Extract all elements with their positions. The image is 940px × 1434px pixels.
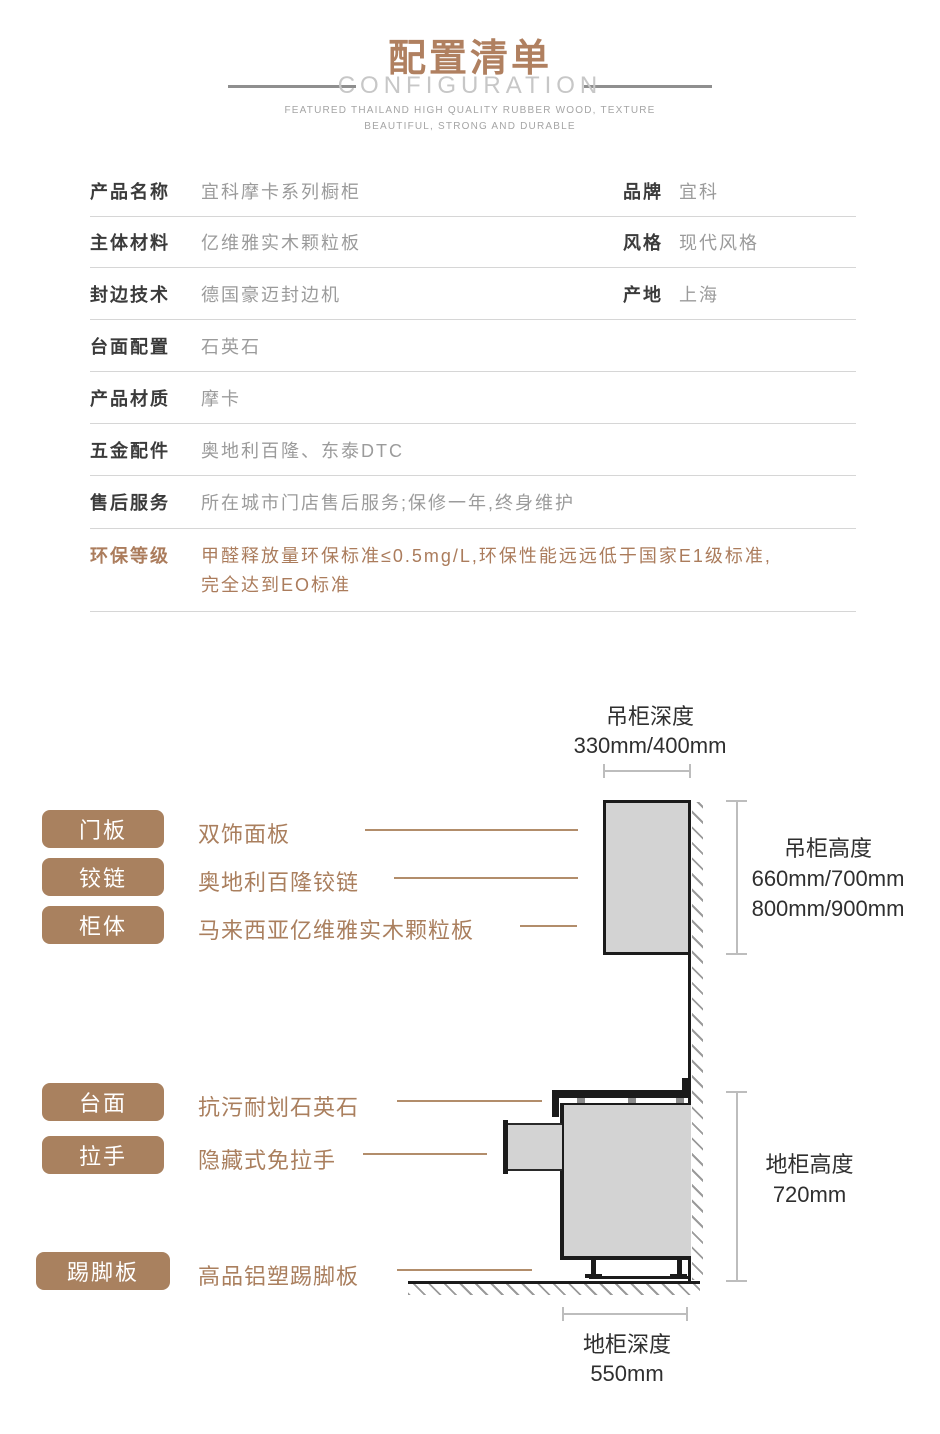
spec-label: 环保等级: [90, 542, 185, 568]
dim-tick: [603, 764, 605, 778]
spec-label: 产地: [623, 281, 663, 307]
tag-door-panel: 门板: [42, 810, 164, 848]
spec-right-pair: 风格 现代风格: [623, 229, 759, 255]
table-row: 产品材质 摩卡: [90, 372, 856, 424]
floor-hatching: [408, 1284, 700, 1295]
leader-line-kickboard: [397, 1269, 532, 1271]
dim-cap: [726, 953, 747, 955]
dim-base-height: 地柜高度 720mm: [722, 1150, 897, 1210]
dim-wall-depth: 吊柜深度 330mm/400mm: [555, 702, 745, 760]
dim-base-height-label: 地柜高度: [722, 1150, 897, 1180]
leader-line-hinge: [394, 877, 578, 879]
dim-wall-height-value1: 660mm/700mm: [733, 864, 923, 894]
spec-value: 奥地利百隆、东泰DTC: [201, 437, 404, 463]
leader-line-handle: [363, 1153, 487, 1155]
spec-label: 封边技术: [90, 281, 185, 307]
tag-hinge: 铰链: [42, 858, 164, 896]
dim-base-depth: 地柜深度 550mm: [543, 1330, 711, 1388]
spec-value: 所在城市门店售后服务;保修一年,终身维护: [201, 489, 575, 515]
table-row: 售后服务 所在城市门店售后服务;保修一年,终身维护: [90, 476, 856, 529]
tag-countertop: 台面: [42, 1083, 164, 1121]
table-row: 产品名称 宜科摩卡系列橱柜 品牌 宜科: [90, 166, 856, 217]
spec-value: 现代风格: [679, 229, 759, 255]
page-subtitle: CONFIGURATION: [0, 72, 940, 100]
spec-value: 石英石: [201, 333, 261, 359]
tag-kickboard-desc: 高品铝塑踢脚板: [198, 1259, 359, 1291]
spec-value: 亿维雅实木颗粒板: [201, 229, 361, 255]
countertop: [552, 1090, 691, 1098]
spec-right-pair: 品牌 宜科: [623, 178, 719, 204]
dim-wall-height: 吊柜高度 660mm/700mm 800mm/900mm: [733, 834, 923, 924]
dim-cap: [726, 1280, 747, 1282]
spec-label: 台面配置: [90, 333, 185, 359]
spec-value: 宜科: [679, 178, 719, 204]
countertop-front-lip: [552, 1090, 559, 1117]
spec-value: 德国豪迈封边机: [201, 281, 341, 307]
spec-table: 产品名称 宜科摩卡系列橱柜 品牌 宜科 主体材料 亿维雅实木颗粒板 风格 现代风…: [90, 166, 856, 612]
dim-tick: [686, 1307, 688, 1321]
dim-wall-depth-value: 330mm/400mm: [555, 731, 745, 760]
spec-right-pair: 产地 上海: [623, 281, 719, 307]
kick-plate: [589, 1276, 688, 1279]
spec-label: 风格: [623, 229, 663, 255]
tagline-line2: BEAUTIFUL, STRONG AND DURABLE: [0, 119, 940, 135]
table-row: 五金配件 奥地利百隆、东泰DTC: [90, 424, 856, 476]
dim-base-height-value: 720mm: [722, 1180, 897, 1210]
table-row: 封边技术 德国豪迈封边机 产地 上海: [90, 268, 856, 320]
spec-label: 产品材质: [90, 385, 185, 411]
dim-wall-height-value2: 800mm/900mm: [733, 894, 923, 924]
table-row: 主体材料 亿维雅实木颗粒板 风格 现代风格: [90, 217, 856, 268]
base-cabinet: [560, 1103, 691, 1260]
leader-line-countertop: [397, 1100, 542, 1102]
spec-label: 产品名称: [90, 178, 185, 204]
dim-cap: [726, 800, 747, 802]
spec-value: 甲醛释放量环保标准≤0.5mg/L,环保性能远远低于国家E1级标准, 完全达到E…: [201, 542, 772, 600]
spec-value: 上海: [679, 281, 719, 307]
tag-hinge-desc: 奥地利百隆铰链: [198, 865, 359, 897]
tag-countertop-desc: 抗污耐划石英石: [198, 1090, 359, 1122]
drawer: [508, 1123, 562, 1171]
eco-value-line1: 甲醛释放量环保标准≤0.5mg/L,环保性能远远低于国家E1级标准,: [201, 542, 772, 571]
spec-value: 宜科摩卡系列橱柜: [201, 178, 361, 204]
tag-handle: 拉手: [42, 1136, 164, 1174]
drawer-front-edge: [503, 1120, 508, 1174]
table-row-eco-rating: 环保等级 甲醛释放量环保标准≤0.5mg/L,环保性能远远低于国家E1级标准, …: [90, 529, 856, 612]
dim-base-depth-label: 地柜深度: [543, 1330, 711, 1359]
spec-label: 五金配件: [90, 437, 185, 463]
spec-label: 售后服务: [90, 489, 185, 515]
spec-label: 品牌: [623, 178, 663, 204]
product-configuration-sheet: 配置清单 CONFIGURATION FEATURED THAILAND HIG…: [0, 0, 940, 1434]
tag-kickboard: 踢脚板: [36, 1252, 170, 1290]
countertop-back-riser: [682, 1078, 691, 1091]
dim-base-depth-value: 550mm: [543, 1359, 711, 1388]
leader-line-door: [365, 829, 578, 831]
table-row: 台面配置 石英石: [90, 320, 856, 372]
dim-line-base-depth: [562, 1313, 688, 1315]
leader-line-body: [520, 925, 577, 927]
tag-handle-desc: 隐藏式免拉手: [198, 1143, 336, 1175]
dim-wall-height-label: 吊柜高度: [733, 834, 923, 864]
eco-value-line2: 完全达到EO标准: [201, 571, 772, 600]
tagline: FEATURED THAILAND HIGH QUALITY RUBBER WO…: [0, 103, 940, 135]
wall-hatching: [692, 802, 703, 1280]
tagline-line1: FEATURED THAILAND HIGH QUALITY RUBBER WO…: [0, 103, 940, 119]
spec-label: 主体材料: [90, 229, 185, 255]
dim-cap: [726, 1091, 747, 1093]
tag-cabinet-body-desc: 马来西亚亿维雅实木颗粒板: [198, 913, 474, 945]
wall-cabinet: [603, 800, 691, 955]
spec-value: 摩卡: [201, 385, 241, 411]
dim-tick: [562, 1307, 564, 1321]
tag-door-panel-desc: 双饰面板: [198, 817, 290, 849]
tag-cabinet-body: 柜体: [42, 906, 164, 944]
dim-wall-depth-label: 吊柜深度: [555, 702, 745, 731]
dim-tick: [689, 764, 691, 778]
dim-line-wall-depth: [603, 770, 691, 772]
